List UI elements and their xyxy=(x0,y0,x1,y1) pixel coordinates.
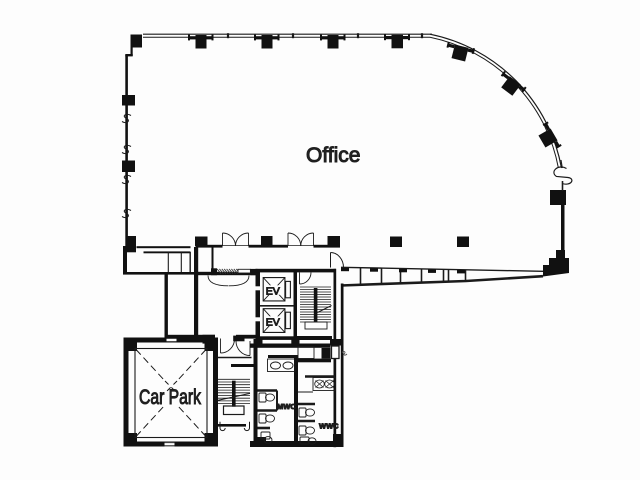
svg-text:Car Park: Car Park xyxy=(139,386,201,409)
svg-text:MWC: MWC xyxy=(277,402,296,411)
svg-text:Office: Office xyxy=(306,144,360,167)
svg-text:EV: EV xyxy=(266,285,280,297)
svg-text:WWC: WWC xyxy=(319,422,339,431)
svg-text:EV: EV xyxy=(266,316,280,328)
